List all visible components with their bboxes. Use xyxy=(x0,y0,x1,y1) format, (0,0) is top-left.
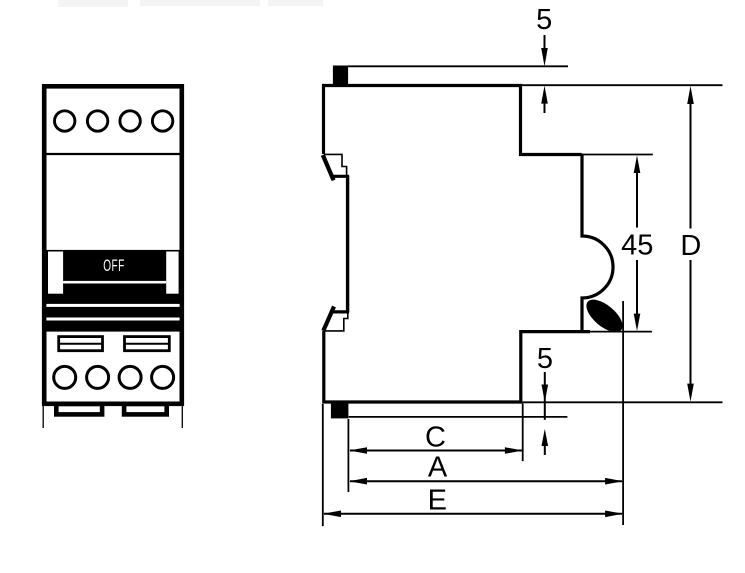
svg-text:D: D xyxy=(680,230,701,262)
svg-text:OFF: OFF xyxy=(103,257,125,275)
svg-text:A: A xyxy=(428,451,448,483)
svg-text:C: C xyxy=(425,421,446,453)
svg-text:E: E xyxy=(428,484,447,516)
svg-text:5: 5 xyxy=(537,343,553,375)
svg-text:5: 5 xyxy=(536,4,552,36)
svg-text:45: 45 xyxy=(621,230,653,262)
